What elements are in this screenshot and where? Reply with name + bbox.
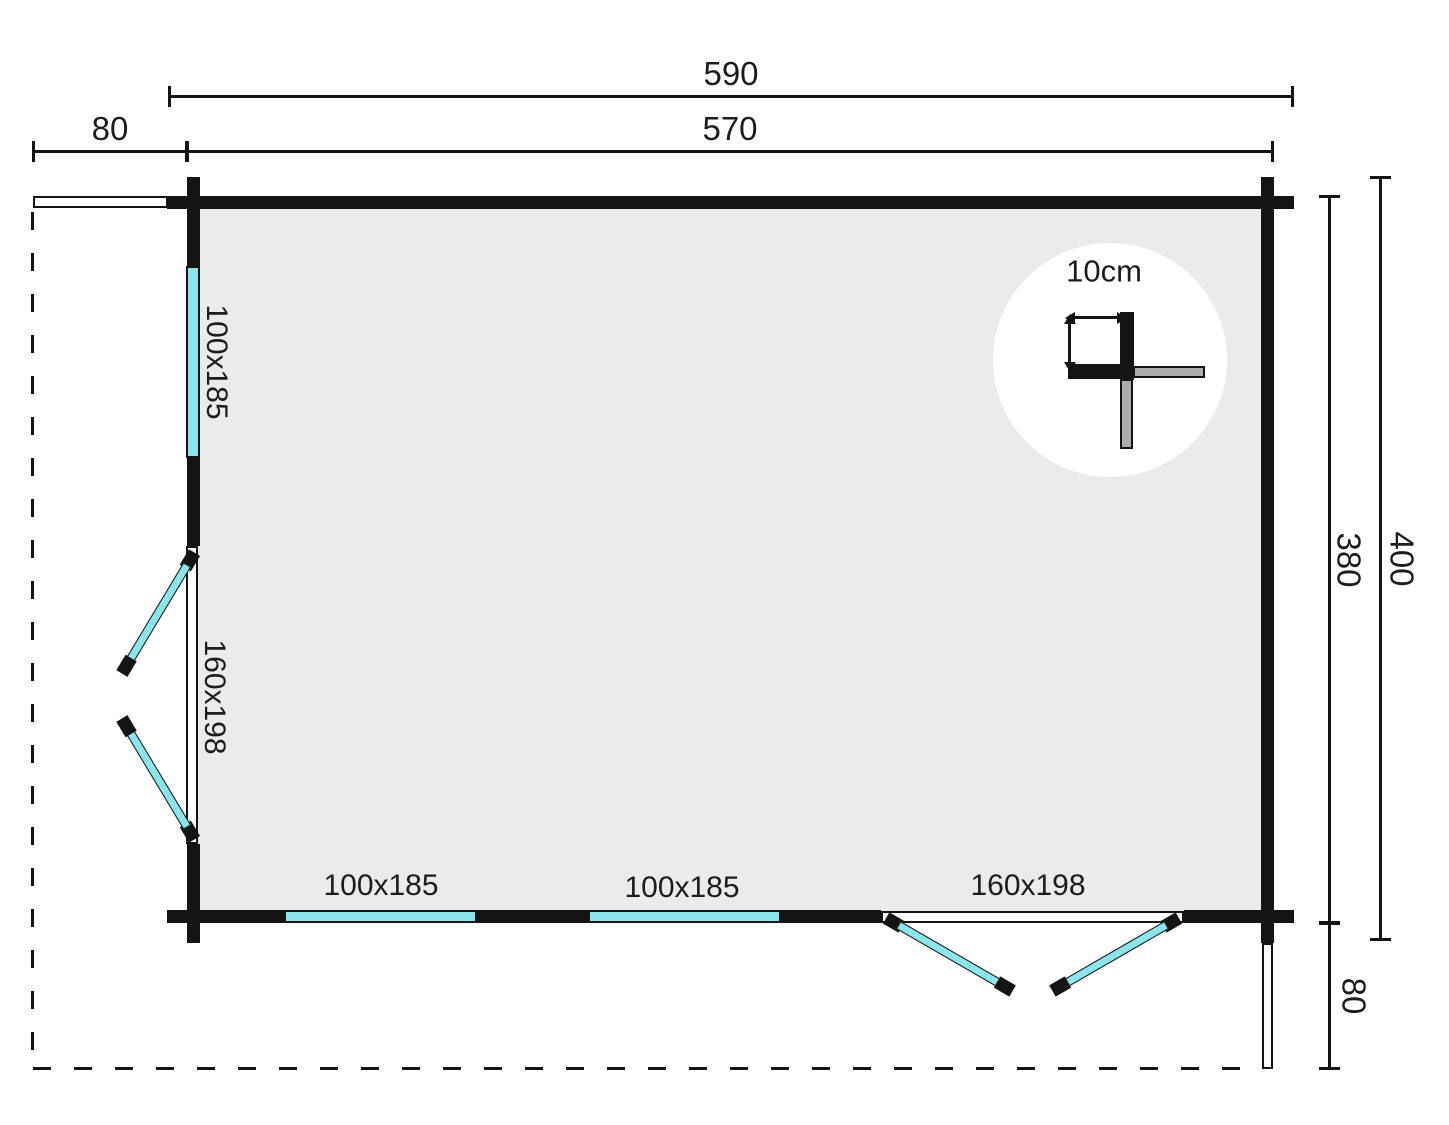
- dimension-side-overhang: 80: [33, 150, 187, 153]
- dimension-wall-depth-value: 380: [1333, 532, 1366, 587]
- corner-log-top-left-horizontal: [167, 196, 187, 209]
- corner-log-top-left-vertical: [187, 177, 200, 197]
- wall-thickness-label: 10cm: [1066, 256, 1142, 287]
- fascia-bottom-right: [1262, 943, 1273, 1069]
- dimension-wall-width: 570: [187, 150, 1273, 153]
- window-bottom-2-label: 100x185: [624, 873, 739, 903]
- wall-right: [1261, 196, 1274, 923]
- window-bottom-2: [588, 910, 781, 923]
- floor-plan-canvas: 10cm: [0, 0, 1449, 1125]
- corner-log-top-right-horizontal: [1274, 196, 1294, 209]
- corner-log-top-right-vertical: [1261, 177, 1274, 197]
- corner-log-bottom-left-horizontal: [167, 910, 187, 923]
- door-leaf-glass: [1062, 921, 1169, 988]
- dimension-wall-depth: 380: [1328, 196, 1331, 923]
- door-leaf-bottom-right: [1050, 912, 1181, 995]
- overhang-dashed-bottom: [33, 1067, 1263, 1070]
- door-frame-left: [186, 546, 198, 844]
- overhang-dashed-left: [31, 212, 34, 1069]
- wall-left-segment-2: [187, 458, 200, 546]
- wall-top: [187, 196, 1274, 209]
- detail-log-gray-vertical: [1120, 379, 1133, 449]
- dimension-overall-width-value: 590: [703, 57, 758, 90]
- dimension-overall-depth: 400: [1379, 177, 1382, 940]
- corner-log-bottom-right-vertical: [1261, 923, 1274, 943]
- door-leaf-glass: [125, 562, 191, 663]
- detail-log-black-horizontal: [1068, 364, 1134, 379]
- door-leaf-glass: [125, 728, 191, 829]
- window-left: [186, 266, 200, 458]
- fascia-top-left: [33, 196, 168, 208]
- door-leaf-bottom-left: [884, 912, 1015, 995]
- window-bottom-1-label: 100x185: [323, 871, 438, 901]
- door-frame-bottom: [881, 911, 1184, 923]
- door-leaf-glass: [896, 921, 1003, 988]
- wall-bottom-segment-4: [1184, 910, 1274, 923]
- detail-height-arrow-icon: [1068, 324, 1071, 362]
- dimension-front-overhang-value: 80: [1338, 978, 1371, 1015]
- detail-width-arrow-icon: [1075, 316, 1117, 319]
- window-left-label: 100x185: [201, 304, 231, 419]
- corner-log-bottom-right-horizontal: [1274, 910, 1294, 923]
- door-bottom-label: 160x198: [970, 871, 1085, 901]
- door-left-label: 160x198: [199, 639, 229, 754]
- wall-left-segment-1: [187, 196, 200, 266]
- wall-bottom-segment-1: [187, 910, 284, 923]
- wall-bottom-segment-2: [477, 910, 588, 923]
- dimension-front-overhang: 80: [1328, 923, 1331, 1069]
- detail-log-gray-horizontal: [1133, 366, 1205, 378]
- dimension-side-overhang-value: 80: [92, 112, 129, 145]
- dimension-overall-depth-value: 400: [1386, 531, 1419, 586]
- dimension-overall-width: 590: [169, 95, 1293, 98]
- window-bottom-1: [284, 910, 477, 923]
- dimension-wall-width-value: 570: [702, 112, 757, 145]
- corner-log-bottom-left-vertical: [187, 923, 200, 943]
- wall-bottom-segment-3: [781, 910, 881, 923]
